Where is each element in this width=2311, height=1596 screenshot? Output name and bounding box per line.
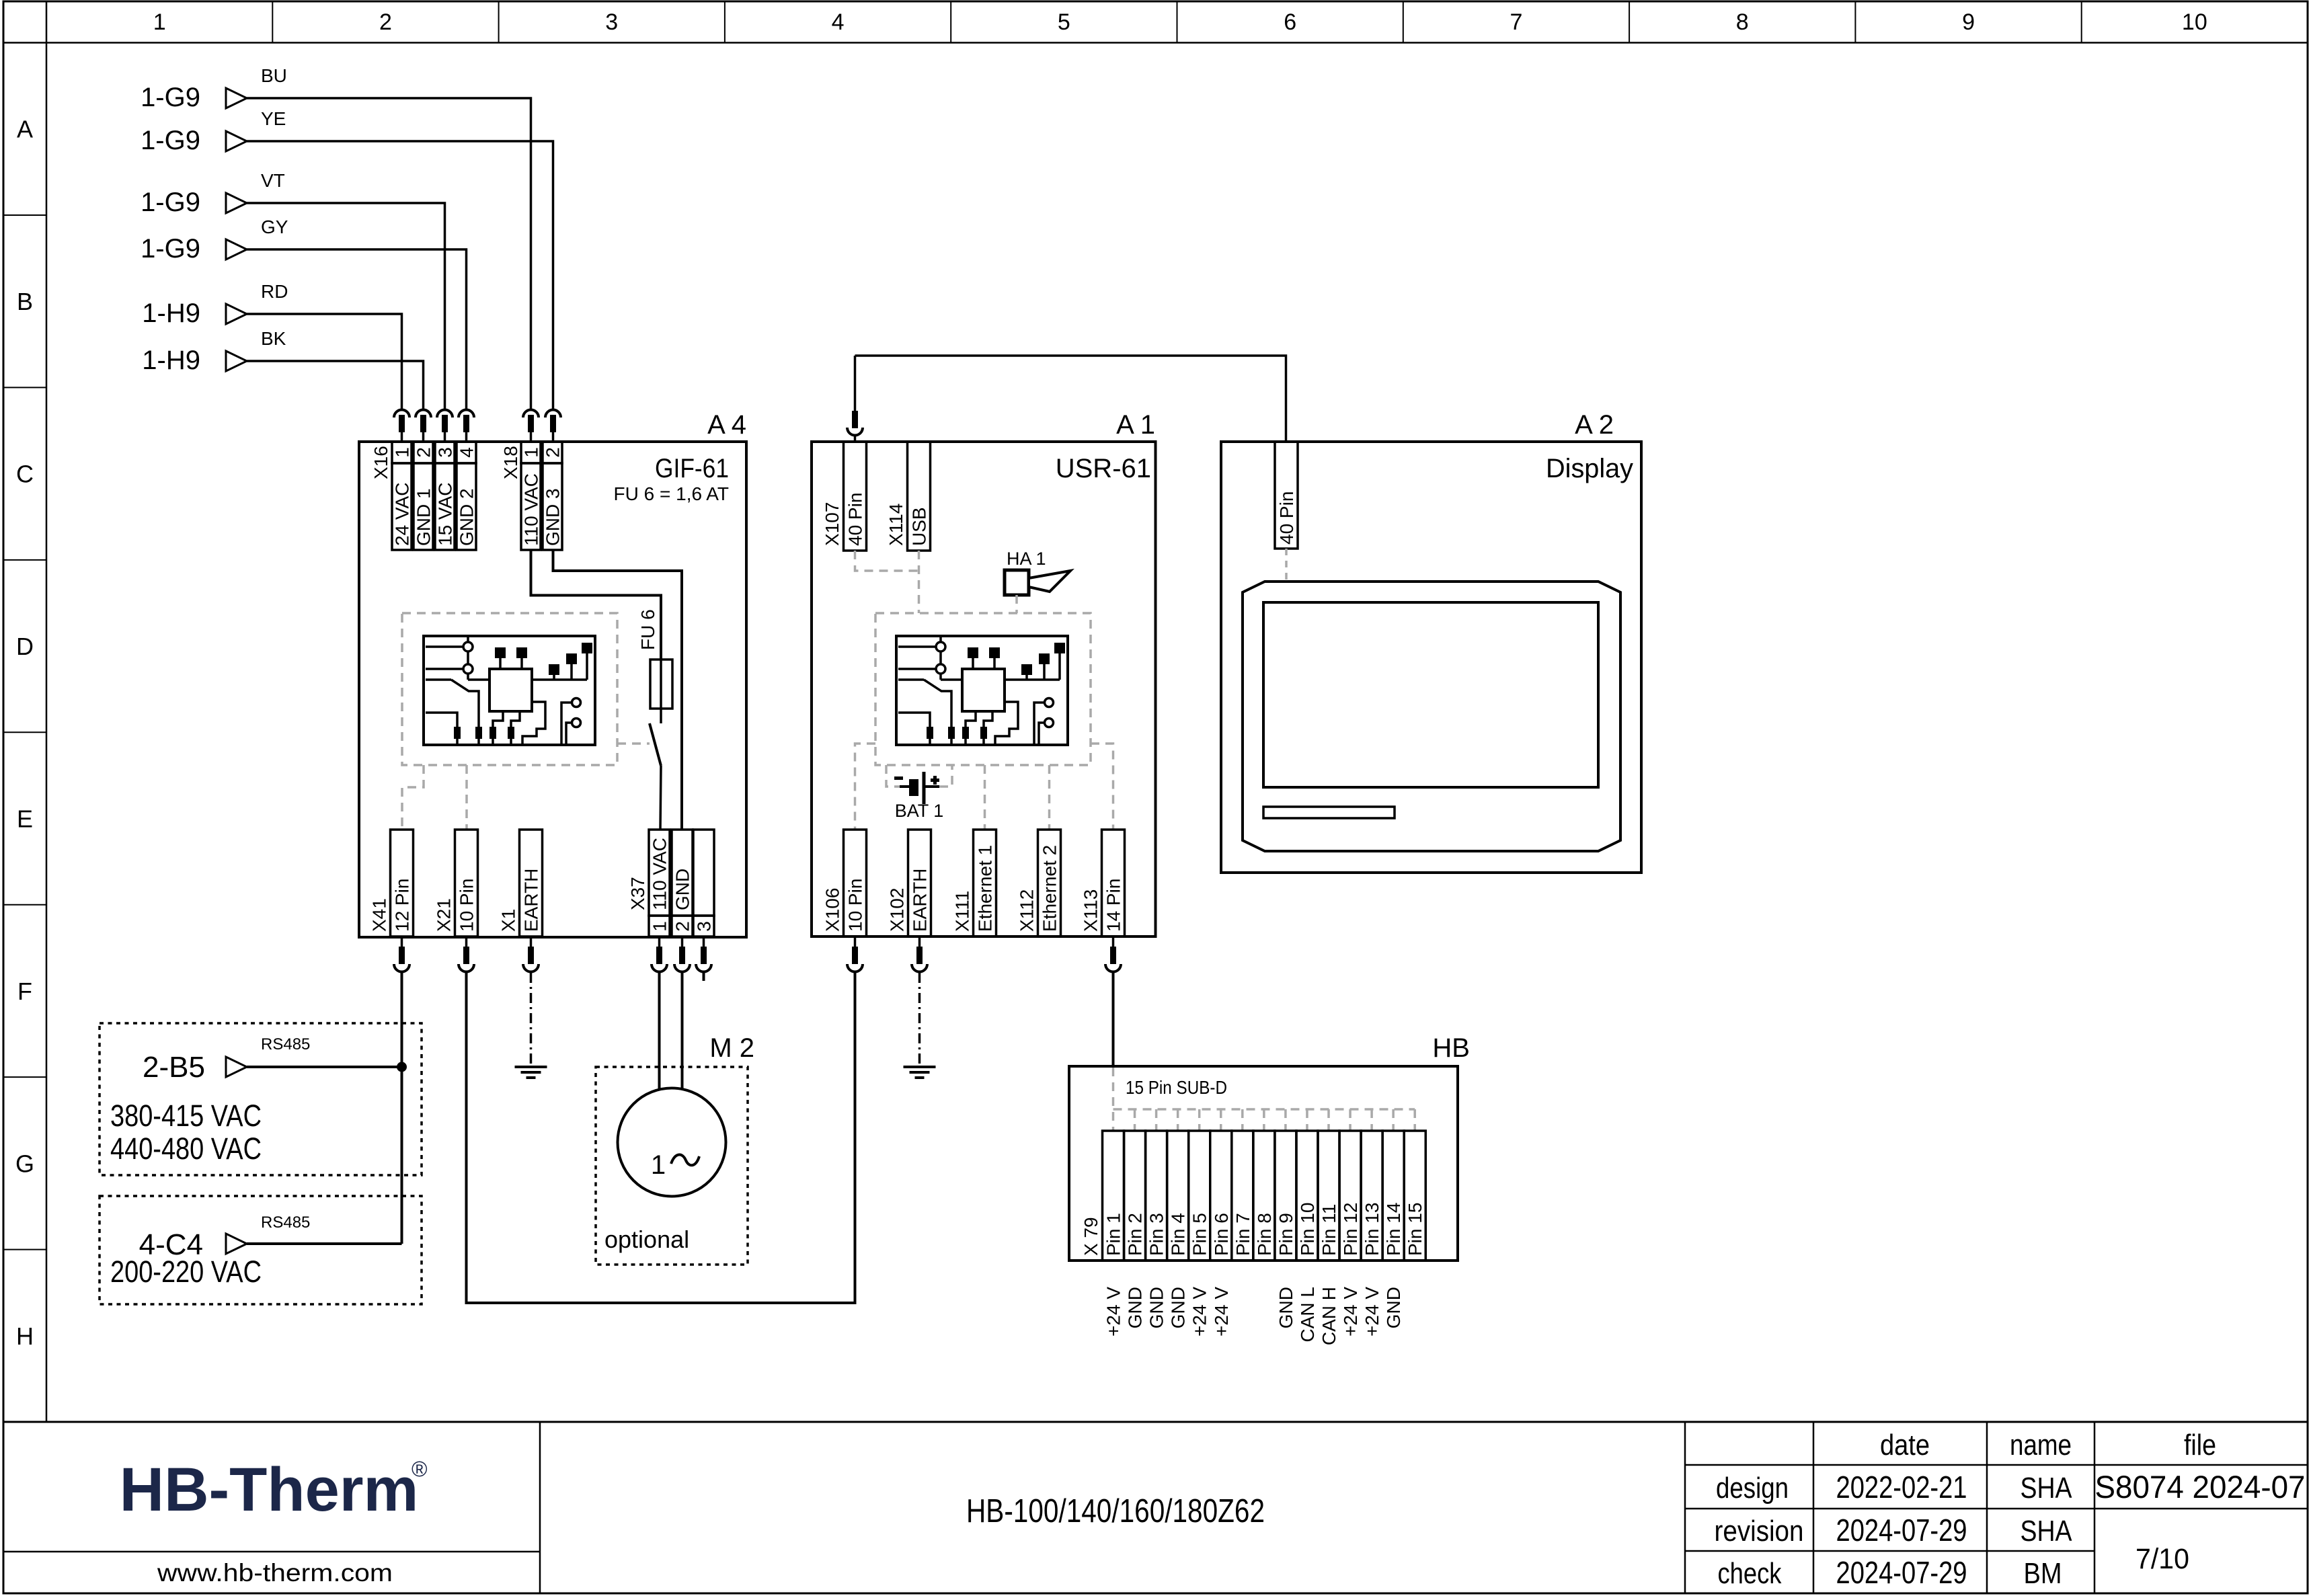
svg-text:GND 2: GND 2 [457, 488, 477, 546]
svg-text:10: 10 [2182, 9, 2207, 35]
svg-text:1-H9: 1-H9 [142, 346, 200, 375]
svg-text:7: 7 [1510, 9, 1522, 35]
svg-text:Pin 11: Pin 11 [1319, 1204, 1339, 1256]
svg-text:10 Pin: 10 Pin [845, 879, 866, 932]
svg-text:7/10: 7/10 [2136, 1543, 2189, 1575]
svg-text:Ethernet 1: Ethernet 1 [975, 845, 996, 932]
svg-text:2-B5: 2-B5 [143, 1051, 205, 1084]
svg-text:1-G9: 1-G9 [141, 83, 200, 112]
svg-text:40 Pin: 40 Pin [1276, 491, 1297, 545]
svg-text:14 Pin: 14 Pin [1103, 879, 1124, 932]
svg-text:15 Pin SUB-D: 15 Pin SUB-D [1126, 1077, 1227, 1098]
svg-text:1: 1 [521, 447, 542, 458]
svg-text:3: 3 [605, 9, 618, 35]
svg-text:1: 1 [153, 9, 166, 35]
svg-text:Pin 1: Pin 1 [1103, 1213, 1124, 1256]
svg-text:GND 1: GND 1 [414, 488, 434, 546]
svg-text:110 VAC: 110 VAC [521, 473, 542, 546]
svg-text:BM: BM [2024, 1557, 2062, 1590]
svg-text:+24 V: +24 V [1362, 1287, 1382, 1336]
svg-text:1-H9: 1-H9 [142, 298, 200, 328]
svg-text:X111: X111 [952, 891, 973, 932]
svg-text:Pin 2: Pin 2 [1125, 1213, 1146, 1256]
svg-text:CAN H: CAN H [1319, 1287, 1339, 1345]
svg-text:HB-100/140/160/180Z62: HB-100/140/160/180Z62 [966, 1493, 1265, 1529]
svg-text:3: 3 [435, 447, 456, 458]
svg-text:A 1: A 1 [1116, 410, 1155, 440]
svg-text:GND: GND [1168, 1287, 1189, 1328]
svg-text:40 Pin: 40 Pin [845, 493, 866, 546]
svg-text:X 79: X 79 [1081, 1217, 1101, 1256]
svg-text:9: 9 [1962, 9, 1975, 35]
svg-text:X107: X107 [822, 502, 843, 546]
svg-text:CAN L: CAN L [1297, 1287, 1318, 1342]
svg-text:Pin 6: Pin 6 [1211, 1213, 1232, 1256]
svg-text:BU: BU [261, 65, 287, 86]
svg-text:F: F [17, 977, 32, 1005]
svg-text:5: 5 [1058, 9, 1070, 35]
svg-text:6: 6 [1284, 9, 1296, 35]
svg-text:+24 V: +24 V [1211, 1287, 1232, 1336]
svg-text:4: 4 [832, 9, 845, 35]
svg-text:EARTH: EARTH [910, 869, 931, 932]
svg-text:D: D [16, 633, 34, 660]
svg-text:+24 V: +24 V [1340, 1287, 1361, 1336]
svg-text:Pin 12: Pin 12 [1340, 1203, 1361, 1256]
svg-text:FU 6 = 1,6 AT: FU 6 = 1,6 AT [614, 483, 729, 504]
svg-text:X37: X37 [627, 877, 648, 910]
svg-text:Pin 5: Pin 5 [1189, 1213, 1210, 1256]
svg-text:1-G9: 1-G9 [141, 126, 200, 155]
svg-text:GND 3: GND 3 [543, 488, 563, 546]
svg-text:Pin 15: Pin 15 [1405, 1203, 1425, 1256]
svg-text:X114: X114 [886, 504, 906, 546]
svg-text:name: name [2010, 1429, 2072, 1462]
svg-text:GY: GY [261, 216, 288, 237]
svg-text:2024-07-29: 2024-07-29 [1836, 1555, 1967, 1590]
svg-text:12 Pin: 12 Pin [392, 879, 413, 932]
svg-text:200-220 VAC: 200-220 VAC [110, 1254, 262, 1289]
svg-text:SHA: SHA [2021, 1515, 2073, 1548]
svg-text:Pin 7: Pin 7 [1232, 1213, 1253, 1256]
svg-text:H: H [16, 1322, 34, 1350]
svg-text:YE: YE [261, 108, 286, 129]
svg-text:10 Pin: 10 Pin [457, 879, 477, 932]
svg-text:BAT 1: BAT 1 [895, 801, 944, 821]
svg-text:Pin 3: Pin 3 [1146, 1213, 1167, 1256]
svg-text:440-480 VAC: 440-480 VAC [110, 1131, 262, 1166]
svg-text:GND: GND [1276, 1287, 1296, 1328]
svg-text:1: 1 [651, 1150, 666, 1180]
svg-text:A 2: A 2 [1575, 410, 1614, 440]
svg-text:X106: X106 [822, 888, 843, 932]
svg-text:Pin 4: Pin 4 [1168, 1213, 1189, 1256]
svg-text:HA 1: HA 1 [1007, 549, 1046, 569]
svg-text:2: 2 [543, 447, 563, 458]
svg-text:check: check [1718, 1557, 1783, 1590]
svg-text:15 VAC: 15 VAC [435, 483, 456, 546]
svg-text:GND: GND [1125, 1287, 1146, 1328]
svg-text:X18: X18 [500, 446, 521, 479]
svg-text:8: 8 [1736, 9, 1749, 35]
svg-text:X1: X1 [498, 909, 519, 932]
svg-text:VT: VT [261, 170, 285, 191]
svg-text:110 VAC: 110 VAC [650, 838, 670, 910]
svg-text:design: design [1716, 1472, 1789, 1505]
svg-text:FU 6: FU 6 [637, 609, 658, 650]
svg-text:B: B [17, 288, 33, 315]
svg-text:2022-02-21: 2022-02-21 [1836, 1470, 1967, 1505]
svg-text:A: A [17, 116, 33, 143]
svg-text:3: 3 [694, 921, 715, 932]
svg-text:Pin 13: Pin 13 [1362, 1203, 1382, 1256]
svg-text:X112: X112 [1017, 889, 1037, 932]
svg-text:X102: X102 [887, 888, 908, 932]
svg-text:Pin 14: Pin 14 [1383, 1203, 1404, 1256]
svg-text:BK: BK [261, 328, 286, 349]
svg-text:E: E [17, 805, 33, 832]
svg-text:USR-61: USR-61 [1056, 454, 1151, 483]
svg-text:C: C [16, 461, 34, 488]
svg-text:380-415 VAC: 380-415 VAC [110, 1099, 262, 1133]
svg-text:date: date [1880, 1429, 1930, 1462]
svg-text:X113: X113 [1081, 889, 1101, 932]
svg-text:1: 1 [650, 921, 670, 932]
svg-text:RD: RD [261, 281, 288, 302]
svg-text:file: file [2184, 1429, 2216, 1462]
svg-text:Pin 10: Pin 10 [1297, 1203, 1318, 1256]
svg-text:2: 2 [379, 9, 392, 35]
svg-text:1-G9: 1-G9 [141, 188, 200, 217]
svg-text:®: ® [412, 1457, 428, 1481]
svg-text:2024-07-29: 2024-07-29 [1836, 1513, 1967, 1548]
svg-text:USB: USB [909, 507, 930, 546]
svg-text:Pin 9: Pin 9 [1276, 1213, 1296, 1256]
svg-text:GND: GND [1146, 1287, 1167, 1328]
svg-text:M 2: M 2 [709, 1033, 754, 1063]
svg-text:2: 2 [672, 921, 693, 932]
svg-text:SHA: SHA [2021, 1472, 2073, 1505]
svg-text:24 VAC: 24 VAC [392, 483, 413, 546]
svg-text:G: G [15, 1150, 34, 1177]
svg-text:GND: GND [1383, 1287, 1404, 1328]
svg-text:+24 V: +24 V [1103, 1287, 1124, 1336]
svg-text:HB: HB [1432, 1033, 1470, 1063]
svg-text:X16: X16 [370, 446, 391, 479]
svg-text:2: 2 [414, 447, 434, 458]
svg-text:optional: optional [604, 1226, 689, 1253]
svg-text:GIF-61: GIF-61 [655, 454, 729, 483]
svg-text:RS485: RS485 [261, 1035, 310, 1053]
svg-text:Pin 8: Pin 8 [1254, 1213, 1275, 1256]
svg-text:RS485: RS485 [261, 1213, 310, 1232]
svg-text:+24 V: +24 V [1189, 1287, 1210, 1336]
svg-text:1-G9: 1-G9 [141, 234, 200, 264]
svg-text:Display: Display [1546, 454, 1633, 483]
svg-text:www.hb-therm.com: www.hb-therm.com [157, 1559, 393, 1587]
svg-text:EARTH: EARTH [521, 869, 542, 932]
svg-text:GND: GND [672, 869, 693, 910]
svg-text:4: 4 [457, 447, 477, 458]
svg-text:S8074 2024-07: S8074 2024-07 [2095, 1469, 2306, 1505]
svg-text:A 4: A 4 [707, 410, 746, 440]
svg-text:1: 1 [392, 447, 413, 458]
svg-text:X41: X41 [369, 898, 390, 932]
svg-text:revision: revision [1715, 1515, 1804, 1548]
svg-text:Ethernet 2: Ethernet 2 [1040, 845, 1060, 932]
svg-text:X21: X21 [434, 898, 455, 932]
svg-text:HB-Therm: HB-Therm [120, 1455, 419, 1524]
